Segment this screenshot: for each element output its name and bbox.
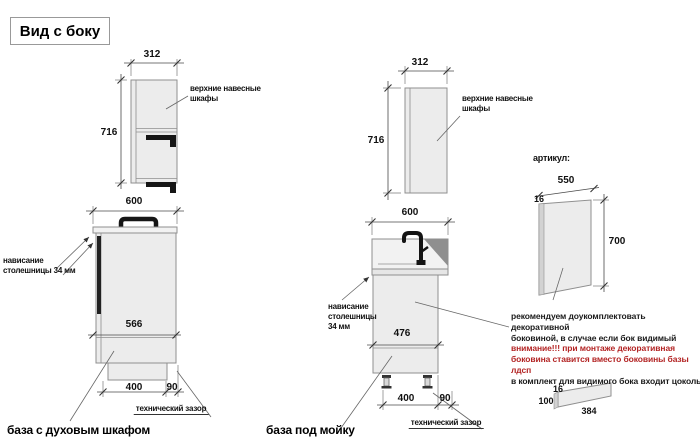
dim-plinth-thickness: 16 — [553, 384, 563, 394]
dim-base-width-left: 600 — [126, 196, 143, 207]
dim-front-span-left: 400 — [126, 382, 143, 393]
note-line-warning: боковина ставится вместо боковины базы л… — [511, 354, 700, 376]
dim-front-span-mid: 400 — [398, 393, 415, 404]
dim-base-depth-mid: 476 — [394, 328, 411, 339]
dim-plinth-height: 100 — [538, 396, 553, 406]
dim-wall-height-left: 716 — [101, 127, 118, 138]
technical-gap-label-mid: технический зазор — [409, 418, 484, 429]
drawing-title: Вид с боку — [10, 17, 110, 45]
dim-plinth-length: 384 — [581, 406, 596, 416]
caption-oven-base: база с духовым шкафом — [7, 423, 150, 437]
dim-panel-width: 550 — [558, 175, 575, 186]
countertop-overhang-label-left: нависание столешницы 34 мм — [3, 256, 76, 276]
dim-panel-thickness: 16 — [534, 194, 544, 204]
wall-cabinet-label-mid: верхние навесные шкафы — [462, 94, 533, 114]
caption-sink-base: база под мойку — [266, 423, 355, 437]
dim-wall-width-mid: 312 — [412, 57, 429, 68]
dim-panel-height: 700 — [609, 236, 626, 247]
note-line: боковиной, в случае если бок видимый — [511, 333, 700, 344]
side-panel-note: рекомендуем доукомплектовать декоративно… — [511, 311, 700, 387]
drawing-canvas: Вид с боку 312 716 верхние навесные шкаф… — [0, 0, 700, 438]
dim-gap-mid: 90 — [439, 393, 450, 404]
dim-base-width-mid: 600 — [402, 207, 419, 218]
dim-gap-left: 90 — [166, 382, 177, 393]
note-line: в комплект для видимого бока входит цоко… — [511, 376, 700, 387]
wall-cabinet-label-left: верхние навесные шкафы — [190, 84, 261, 104]
article-heading: артикул: — [533, 153, 570, 163]
technical-gap-label-left: технический зазор — [134, 404, 209, 415]
note-line-warning: внимание!!! при монтаже декоративная — [511, 343, 700, 354]
dim-base-depth-left: 566 — [126, 319, 143, 330]
dim-wall-height-mid: 716 — [368, 135, 385, 146]
countertop-overhang-label-mid: нависание столешницы 34 мм — [328, 302, 377, 332]
note-line: рекомендуем доукомплектовать декоративно… — [511, 311, 700, 333]
dim-wall-width-left: 312 — [144, 49, 161, 60]
